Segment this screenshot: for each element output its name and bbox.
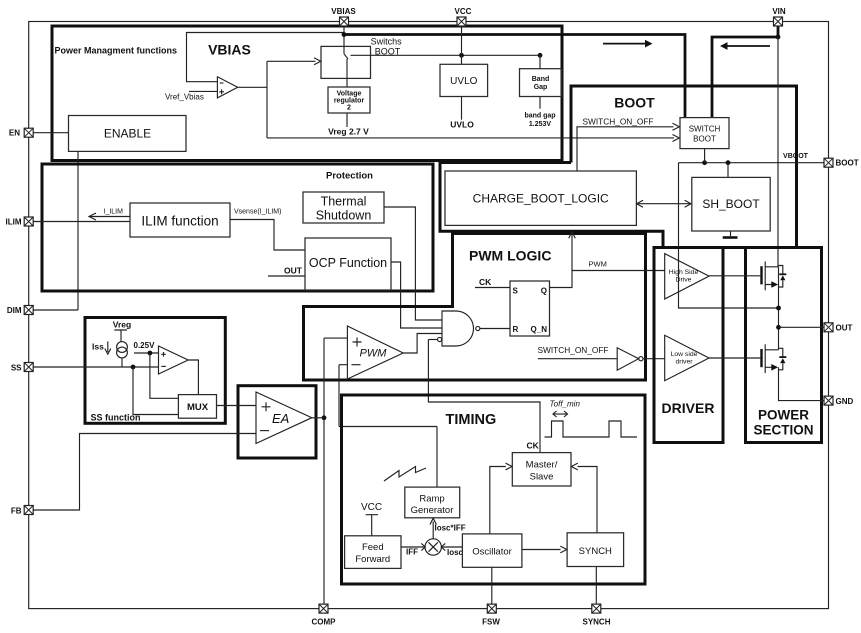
svg-text:Gap: Gap <box>534 84 548 91</box>
svg-text:Protection: Protection <box>326 171 373 182</box>
svg-text:BOOT: BOOT <box>693 135 716 144</box>
svg-text:VBIAS: VBIAS <box>331 7 356 16</box>
svg-text:Power Managment functions: Power Managment functions <box>55 46 178 56</box>
svg-text:I_ILIM: I_ILIM <box>104 209 124 216</box>
svg-text:VCC: VCC <box>361 502 382 513</box>
svg-text:Iss: Iss <box>92 342 104 352</box>
svg-text:Thermal: Thermal <box>321 195 367 209</box>
svg-text:OCP Function: OCP Function <box>309 256 387 270</box>
svg-text:regulator: regulator <box>334 98 365 105</box>
svg-text:Generator: Generator <box>411 505 454 516</box>
svg-text:Ramp: Ramp <box>419 494 444 505</box>
svg-text:0.25V: 0.25V <box>134 341 156 350</box>
svg-text:Vsense(I_ILIM): Vsense(I_ILIM) <box>234 209 281 216</box>
svg-text:SH_BOOT: SH_BOOT <box>702 197 760 211</box>
svg-text:SS: SS <box>11 364 22 373</box>
svg-text:OUT: OUT <box>836 324 853 333</box>
svg-text:PWM LOGIC: PWM LOGIC <box>469 248 551 264</box>
svg-text:R: R <box>513 325 519 334</box>
svg-text:CK: CK <box>479 277 492 287</box>
svg-text:Vref_Vbias: Vref_Vbias <box>165 93 204 102</box>
svg-text:VBIAS: VBIAS <box>208 42 251 58</box>
svg-text:VCC: VCC <box>455 7 472 16</box>
svg-text:Band: Band <box>532 76 550 83</box>
svg-text:UVLO: UVLO <box>450 120 474 130</box>
svg-text:MUX: MUX <box>187 402 209 413</box>
svg-text:SECTION: SECTION <box>753 423 813 438</box>
svg-text:Iosc: Iosc <box>447 548 464 557</box>
svg-text:Vreg 2.7 V: Vreg 2.7 V <box>328 127 369 137</box>
svg-text:TIMING: TIMING <box>446 412 497 428</box>
svg-text:ILIM function: ILIM function <box>141 214 218 229</box>
svg-text:ILIM: ILIM <box>6 218 22 227</box>
svg-text:VIN: VIN <box>772 7 786 16</box>
svg-text:Oscillator: Oscillator <box>472 547 512 558</box>
svg-text:SWITCH: SWITCH <box>689 125 721 134</box>
svg-text:driver: driver <box>676 359 694 366</box>
svg-text:1.253V: 1.253V <box>529 121 552 128</box>
svg-text:Switchs: Switchs <box>371 37 403 47</box>
svg-text:DRIVER: DRIVER <box>662 400 715 416</box>
svg-text:Low side: Low side <box>671 351 698 358</box>
svg-text:EA: EA <box>272 411 289 426</box>
svg-text:COMP: COMP <box>312 618 337 627</box>
svg-text:POWER: POWER <box>758 408 809 423</box>
svg-text:UVLO: UVLO <box>450 76 477 87</box>
svg-text:ENABLE: ENABLE <box>104 127 151 141</box>
svg-text:PWM: PWM <box>360 348 388 360</box>
svg-text:Vreg: Vreg <box>113 320 131 330</box>
svg-text:Shutdown: Shutdown <box>316 209 372 223</box>
svg-text:SYNCH: SYNCH <box>579 546 612 557</box>
svg-text:Toff_min: Toff_min <box>550 400 581 409</box>
svg-text:CK: CK <box>527 441 540 451</box>
svg-text:BOOT: BOOT <box>614 95 655 111</box>
svg-text:DIM: DIM <box>7 306 22 315</box>
svg-text:Forward: Forward <box>355 554 390 565</box>
svg-text:Q_N: Q_N <box>531 325 548 334</box>
svg-text:Voltage: Voltage <box>337 91 362 98</box>
svg-text:Master/: Master/ <box>526 460 558 471</box>
svg-text:FB: FB <box>11 507 22 516</box>
svg-text:SYNCH: SYNCH <box>582 618 610 627</box>
svg-text:GND: GND <box>836 397 854 406</box>
svg-text:Feed: Feed <box>362 542 384 553</box>
svg-text:IFF: IFF <box>406 548 418 557</box>
svg-text:Slave: Slave <box>530 472 554 483</box>
svg-text:Q: Q <box>541 287 547 296</box>
svg-text:EN: EN <box>9 129 20 138</box>
svg-text:SWITCH_ON_OFF: SWITCH_ON_OFF <box>538 345 609 355</box>
svg-text:PWM: PWM <box>589 260 607 269</box>
svg-text:OUT: OUT <box>284 266 303 276</box>
svg-text:2: 2 <box>347 105 351 112</box>
svg-text:Iosc*IFF: Iosc*IFF <box>435 524 466 533</box>
svg-text:High Side: High Side <box>669 269 699 276</box>
svg-text:CHARGE_BOOT_LOGIC: CHARGE_BOOT_LOGIC <box>473 192 609 206</box>
svg-text:FSW: FSW <box>482 618 500 627</box>
svg-text:Drive: Drive <box>676 276 692 283</box>
svg-text:band gap: band gap <box>524 113 555 120</box>
svg-text:SWITCH_ON_OFF: SWITCH_ON_OFF <box>583 117 654 127</box>
svg-text:S: S <box>513 287 519 296</box>
svg-text:VBOOT: VBOOT <box>783 153 809 160</box>
svg-text:BOOT: BOOT <box>836 159 859 168</box>
